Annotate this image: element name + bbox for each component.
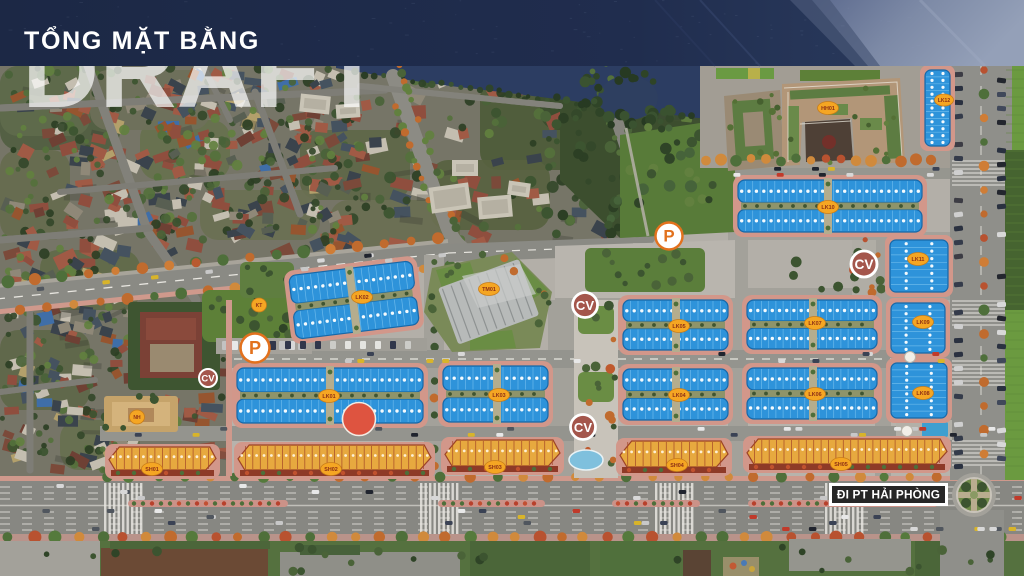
svg-text:TM01: TM01 (482, 287, 496, 293)
svg-text:LK02: LK02 (355, 295, 368, 301)
svg-text:LK08: LK08 (916, 391, 929, 397)
svg-text:CV: CV (201, 373, 215, 384)
svg-text:TỔNG MẶT BẰNG: TỔNG MẶT BẰNG (24, 25, 260, 55)
svg-text:LK05: LK05 (672, 324, 685, 330)
svg-text:NH: NH (133, 415, 141, 421)
svg-text:P: P (249, 338, 261, 358)
svg-text:SH01: SH01 (145, 467, 159, 473)
svg-text:ĐI PT HẢI PHÒNG: ĐI PT HẢI PHÒNG (837, 488, 940, 502)
svg-text:LK07: LK07 (808, 321, 821, 327)
svg-text:CV: CV (574, 420, 592, 435)
svg-text:LK03: LK03 (492, 393, 505, 399)
svg-text:LK09: LK09 (916, 320, 929, 326)
svg-text:CV: CV (576, 298, 594, 313)
svg-text:LK11: LK11 (912, 257, 925, 263)
svg-text:P: P (663, 227, 674, 246)
svg-text:LK10: LK10 (821, 205, 834, 211)
svg-text:HH01: HH01 (821, 106, 835, 112)
svg-text:CV: CV (854, 257, 874, 272)
svg-text:SH02: SH02 (324, 467, 338, 473)
svg-text:LK06: LK06 (808, 392, 821, 398)
svg-text:SH05: SH05 (834, 462, 848, 468)
svg-text:LK04: LK04 (672, 393, 685, 399)
svg-text:SH04: SH04 (670, 463, 684, 469)
svg-text:LK01: LK01 (322, 394, 335, 400)
svg-text:SH03: SH03 (488, 465, 502, 471)
svg-text:LK12: LK12 (938, 98, 950, 104)
svg-text:KT: KT (256, 303, 263, 309)
